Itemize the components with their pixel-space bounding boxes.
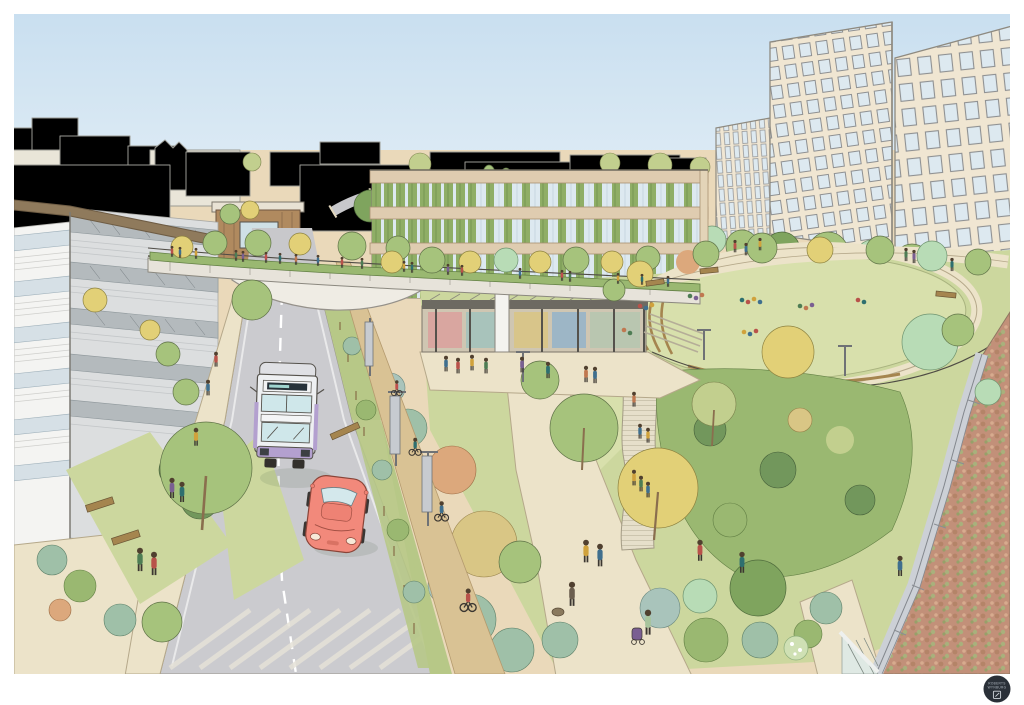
car [301, 474, 372, 555]
plaza [420, 352, 700, 398]
canopy-soffit [422, 300, 648, 309]
logo-text-line2: WYNBURG [988, 686, 1007, 690]
illustration-frame: ROBERTS WYNBURG [0, 0, 1024, 705]
tower-left-face [770, 22, 892, 252]
double-decker-bus [247, 362, 325, 470]
masterplan-illustration: ROBERTS WYNBURG [0, 0, 1024, 705]
shopfront-glazing [428, 312, 640, 348]
artist-logo: ROBERTS WYNBURG [984, 676, 1011, 703]
wayfinding-totem [495, 292, 509, 352]
